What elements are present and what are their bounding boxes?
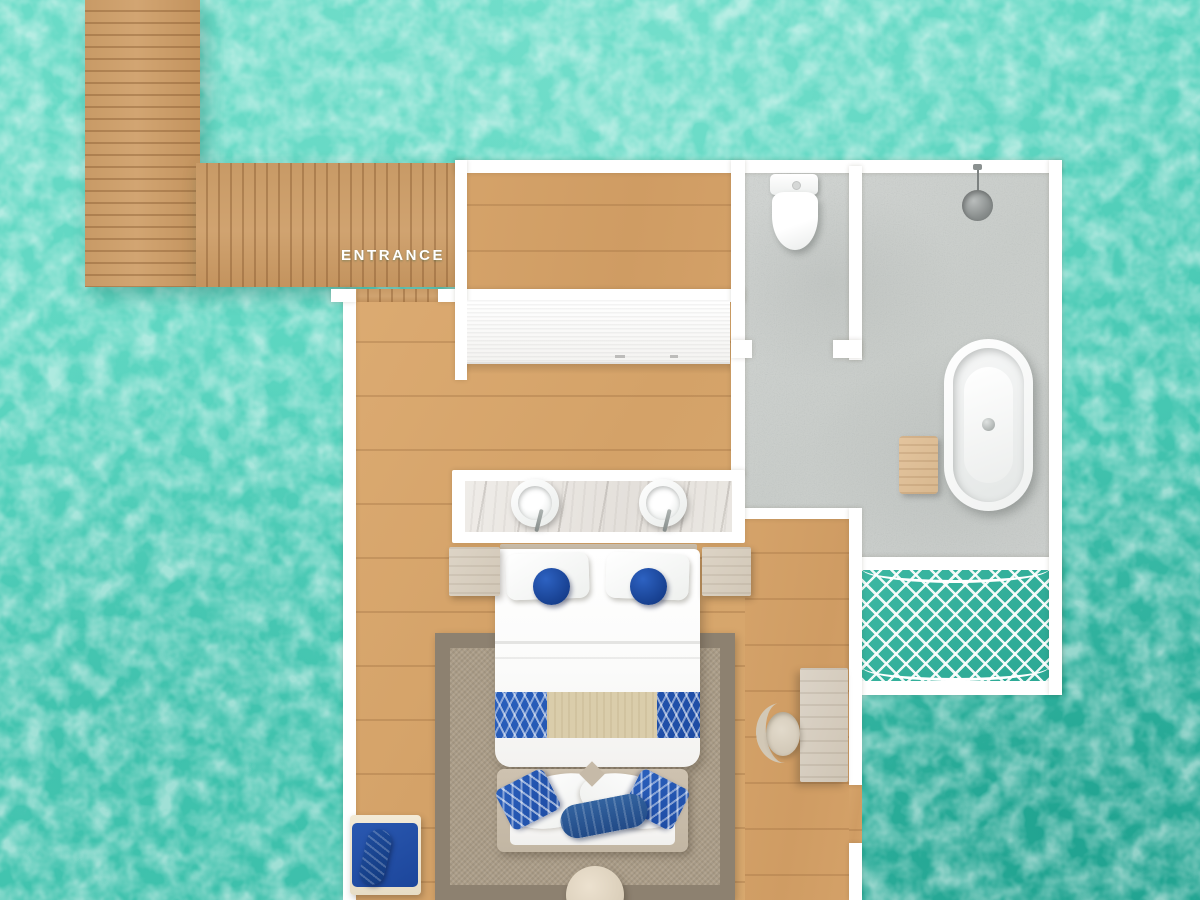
wall-wc-stub-right [833,340,862,358]
wall-east [1049,160,1062,695]
deck-walkway-vertical [85,0,200,287]
bathtub [944,339,1033,511]
nightstand-left [449,547,500,596]
wall-west [343,289,356,900]
floor-plan-scene: ENTRANCE [0,0,1200,900]
sink-left [511,479,559,527]
closet-floor [455,160,745,302]
net-rope-top [862,568,1049,583]
wall-wc-stub-left [731,340,752,358]
entrance-threshold [357,289,438,302]
entrance-label: ENTRANCE [341,247,445,264]
wall-bathroom-west [731,160,745,477]
duvet-fold-2 [495,657,700,659]
deck-walkway-horizontal [196,163,456,287]
shower-head [962,190,993,221]
round-cushion-right [630,568,667,605]
toilet-bowl [772,192,818,250]
round-cushion-left [533,568,570,605]
writing-desk [800,668,848,782]
overwater-hammock-net [862,570,1049,681]
wall-closet-west [455,160,467,380]
toilet [768,174,820,252]
wall-bedroom-east-lower [849,843,862,900]
wall-north [455,160,1062,173]
east-opening-floor [849,785,862,843]
wall-wc-divider [849,166,862,360]
lounge-daybed [350,815,421,895]
sink-right-basin [646,486,680,520]
bathtub-drain [982,418,995,431]
wall-entrance-left-stub [331,289,356,302]
sofa-frame [497,769,688,852]
bed-runner-panel [547,692,657,738]
nightstand-right [702,547,751,596]
sink-left-basin [518,486,552,520]
duvet-fold [495,641,700,644]
shower-arm-mount [973,164,982,170]
sink-right [639,479,687,527]
wall-bedroom-east-upper [849,508,862,785]
net-rope-bottom [862,666,1049,681]
vanity-marble [465,481,732,532]
dresser-handle-right [670,355,678,358]
wall-bathroom-south [731,508,849,519]
wardrobe-dresser [467,300,730,364]
toilet-flush-button [792,181,801,190]
bath-stool [899,436,938,494]
desk-chair-seat [766,712,800,756]
dresser-handle-left [615,355,625,358]
